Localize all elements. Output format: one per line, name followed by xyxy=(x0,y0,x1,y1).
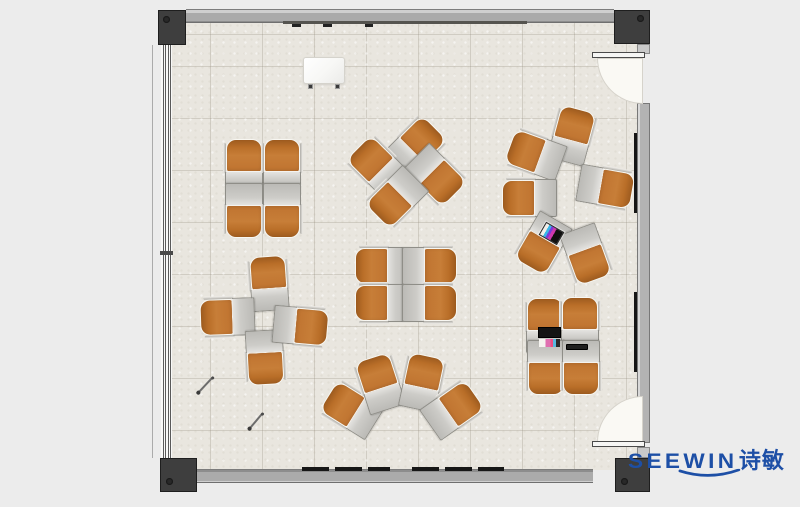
chair-armrest xyxy=(423,282,453,285)
chair-seat xyxy=(356,249,388,283)
left-window-outer-line xyxy=(152,45,153,458)
mobile-whiteboard-easel xyxy=(303,57,345,84)
chair-armrest xyxy=(599,361,602,391)
seewin-logo: SEEWIN 诗敏 xyxy=(628,451,785,485)
logo-wordmark: SEEWIN xyxy=(628,451,738,472)
desk-chair-unit xyxy=(502,178,558,218)
chair-armrest xyxy=(423,245,453,248)
floor-plan-canvas: SEEWIN 诗敏 xyxy=(0,0,800,507)
desk-chair-unit xyxy=(401,246,457,286)
easel-foot xyxy=(335,84,340,89)
chair-seat xyxy=(564,362,598,394)
wall-right xyxy=(637,103,650,443)
chair-armrest xyxy=(560,361,563,391)
chair-armrest xyxy=(359,282,389,285)
chair-armrest xyxy=(524,302,527,332)
student-desk xyxy=(271,305,297,345)
chair-armrest xyxy=(506,216,536,219)
chair-seat xyxy=(265,140,299,172)
wall-board-bottom-left-segment xyxy=(302,467,390,471)
chair-armrest xyxy=(359,321,389,324)
chair-seat xyxy=(248,351,284,385)
chair-armrest xyxy=(598,301,601,331)
column-bottom-left xyxy=(160,458,197,492)
chair-armrest xyxy=(223,204,226,234)
chair-seat xyxy=(294,309,329,346)
door-leaf-top-right xyxy=(592,52,645,58)
student-desk xyxy=(225,183,263,206)
window-mullion xyxy=(160,251,173,255)
chair-seat xyxy=(503,181,535,215)
chair-armrest xyxy=(300,204,303,234)
chair-seat xyxy=(424,249,456,283)
chair-armrest xyxy=(359,245,389,248)
student-desk xyxy=(263,183,301,206)
laptop-screen xyxy=(538,327,561,338)
chair-seat xyxy=(424,286,456,320)
column-top-right xyxy=(614,10,650,44)
chair-seat xyxy=(227,140,261,172)
door-leaf-bottom-right xyxy=(592,441,645,447)
desk-chair-unit xyxy=(270,304,329,349)
chair-seat xyxy=(563,298,597,330)
chair-seat xyxy=(200,300,233,335)
board-marker xyxy=(292,24,301,27)
wall-bottom xyxy=(197,469,593,483)
wall-board-right-lower xyxy=(634,292,637,372)
laptop-keyboard xyxy=(539,339,560,347)
chair-armrest xyxy=(300,143,303,173)
chair-seat xyxy=(529,362,563,394)
open-laptop xyxy=(538,327,561,347)
chair-armrest xyxy=(506,177,536,180)
student-desk xyxy=(402,247,425,285)
desk-chair-unit xyxy=(262,182,302,238)
chair-armrest xyxy=(223,143,226,173)
chair-armrest xyxy=(525,361,528,391)
column-top-left xyxy=(158,10,186,45)
easel-foot xyxy=(308,84,313,89)
closed-tablet xyxy=(566,344,588,350)
desk-chair-unit xyxy=(401,283,457,323)
chair-seat xyxy=(227,205,261,237)
whiteboard-rail-top xyxy=(283,21,527,24)
student-desk xyxy=(402,284,425,322)
chair-seat xyxy=(356,286,388,320)
chair-armrest xyxy=(261,143,264,173)
board-marker xyxy=(365,24,373,27)
logo-chinese-text: 诗敏 xyxy=(739,451,785,471)
logo-swoosh-icon xyxy=(678,469,741,480)
chair-armrest xyxy=(261,204,264,234)
wall-board-bottom-right-segment xyxy=(412,467,504,471)
chair-armrest xyxy=(423,321,453,324)
desk-chair-unit xyxy=(224,182,264,238)
chair-seat xyxy=(250,256,286,290)
chair-seat xyxy=(265,205,299,237)
board-marker xyxy=(323,24,332,27)
